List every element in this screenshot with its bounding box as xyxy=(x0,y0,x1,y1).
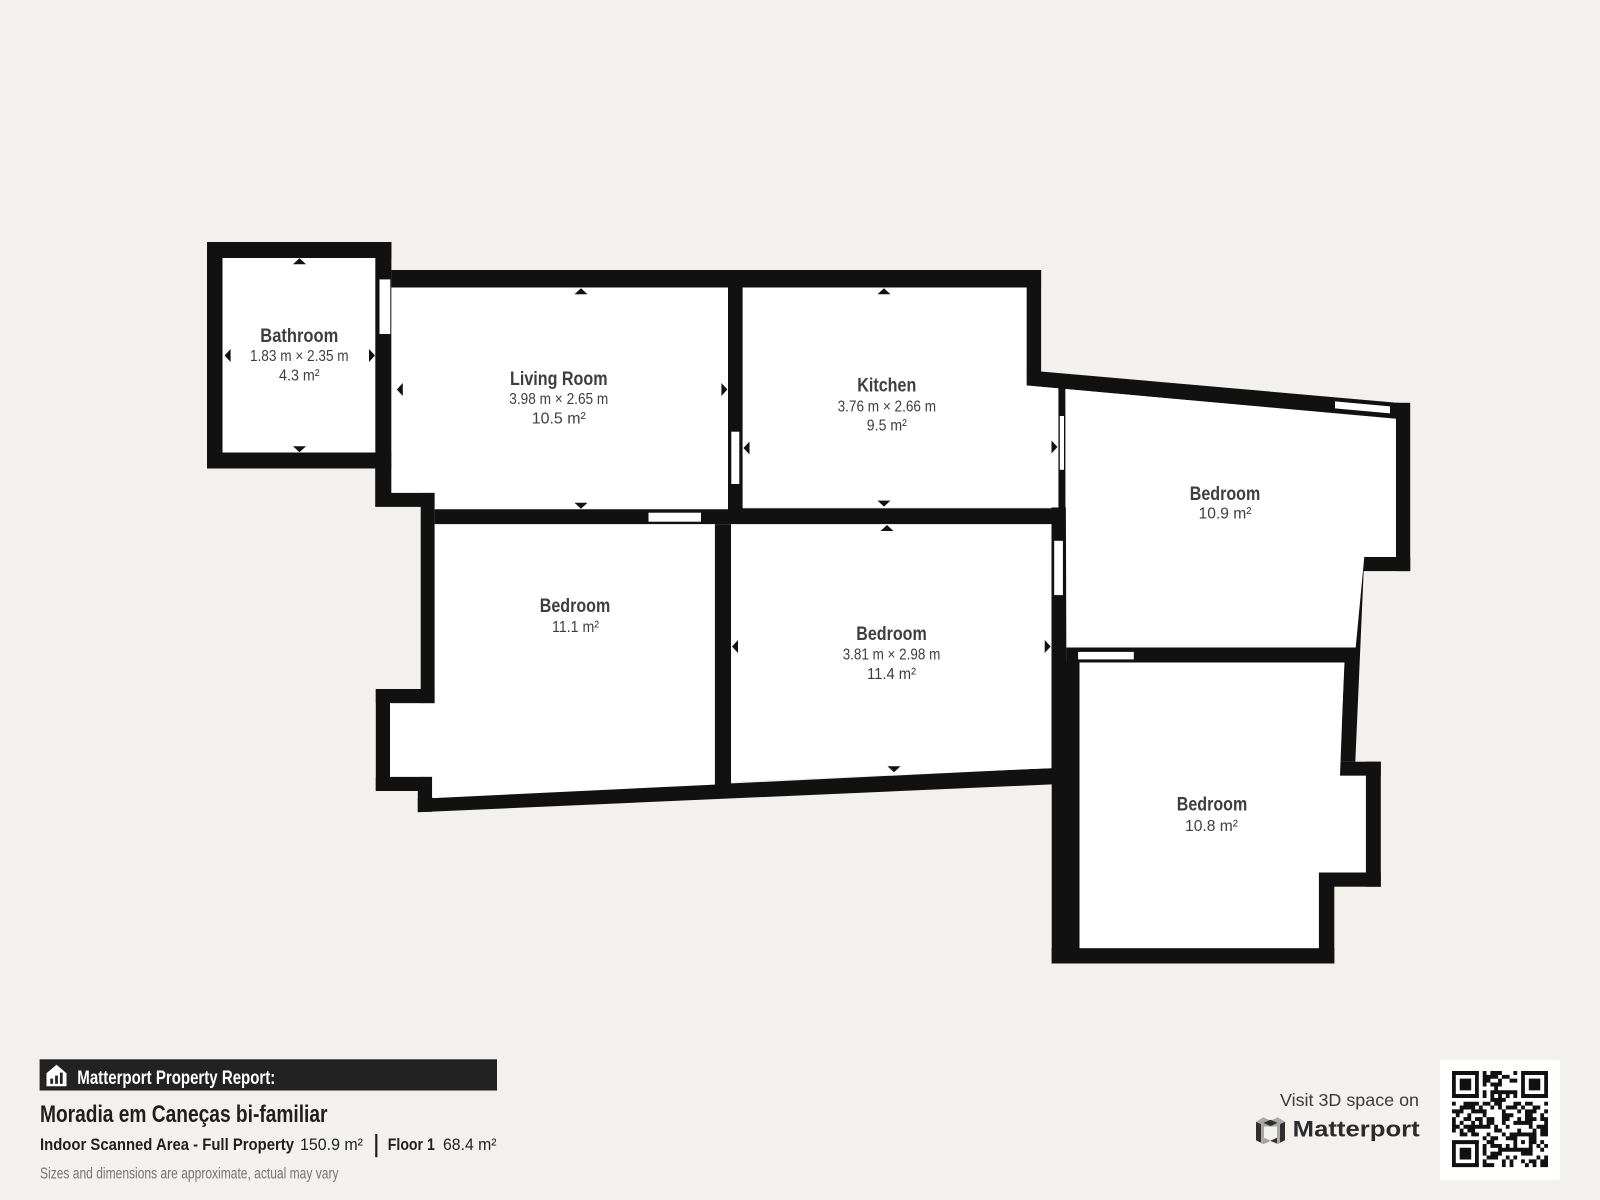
svg-text:9.5 m²: 9.5 m² xyxy=(867,417,908,434)
svg-text:Kitchen: Kitchen xyxy=(857,375,916,396)
svg-text:10.5 m²: 10.5 m² xyxy=(532,410,587,427)
svg-text:Living Room: Living Room xyxy=(510,369,608,390)
svg-text:3.98 m × 2.65 m: 3.98 m × 2.65 m xyxy=(509,391,608,408)
svg-text:Matterport Property Report:: Matterport Property Report: xyxy=(77,1068,275,1089)
svg-text:Bedroom: Bedroom xyxy=(1190,484,1261,505)
svg-text:68.4 m²: 68.4 m² xyxy=(443,1136,497,1154)
svg-text:Bedroom: Bedroom xyxy=(856,624,927,645)
svg-text:Bathroom: Bathroom xyxy=(260,326,338,347)
svg-text:11.1 m²: 11.1 m² xyxy=(552,619,600,636)
svg-text:4.3 m²: 4.3 m² xyxy=(279,367,320,384)
svg-text:Bedroom: Bedroom xyxy=(540,596,611,617)
svg-text:Matterport: Matterport xyxy=(1293,1117,1421,1142)
svg-text:3.81 m × 2.98 m: 3.81 m × 2.98 m xyxy=(843,646,941,663)
svg-text:3.76 m × 2.66 m: 3.76 m × 2.66 m xyxy=(838,399,936,416)
svg-text:1.83 m × 2.35 m: 1.83 m × 2.35 m xyxy=(250,348,349,365)
svg-text:10.9 m²: 10.9 m² xyxy=(1199,505,1253,522)
svg-text:10.8 m²: 10.8 m² xyxy=(1185,818,1239,835)
svg-text:11.4 m²: 11.4 m² xyxy=(867,666,917,683)
svg-text:Indoor Scanned Area - Full Pro: Indoor Scanned Area - Full Property xyxy=(40,1136,295,1154)
svg-text:150.9 m²: 150.9 m² xyxy=(300,1136,363,1154)
svg-text:Sizes and dimensions are appro: Sizes and dimensions are approximate, ac… xyxy=(40,1166,339,1183)
svg-text:Floor 1: Floor 1 xyxy=(388,1136,435,1154)
svg-text:Moradia em Caneças bi-familiar: Moradia em Caneças bi-familiar xyxy=(40,1101,328,1128)
svg-text:Visit 3D space on: Visit 3D space on xyxy=(1280,1090,1419,1110)
svg-text:Bedroom: Bedroom xyxy=(1177,794,1248,815)
